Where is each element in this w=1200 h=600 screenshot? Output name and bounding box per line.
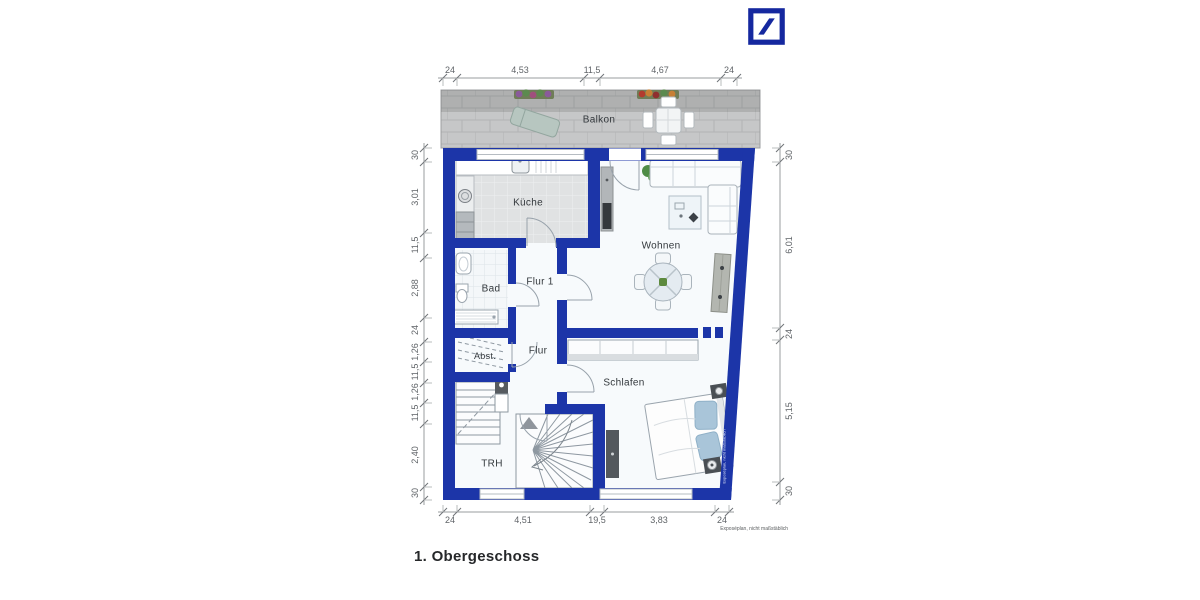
dim-right-2: 24 [784, 329, 794, 339]
room-label-kueche: Küche [513, 198, 543, 209]
floorplan-page: Balkon Küche Wohnen Bad Flur 1 Flur Abst… [0, 0, 1200, 600]
dim-right-4: 30 [784, 486, 794, 496]
dim-left-4: 24 [410, 325, 420, 335]
room-label-wohnen: Wohnen [642, 241, 681, 252]
dim-left-3: 2,88 [410, 279, 420, 297]
room-label-trh: TRH [481, 459, 502, 470]
dim-left-9: 2,40 [410, 446, 420, 464]
dim-left-6: 11,5 [410, 364, 420, 381]
room-label-abst: Abst. [474, 351, 496, 361]
page-title: 1. Obergeschoss [414, 548, 539, 565]
dim-top-0: 24 [445, 65, 455, 75]
room-label-flur: Flur [529, 346, 547, 357]
dim-left-7: 1,26 [410, 383, 420, 401]
room-label-schlafen: Schlafen [603, 378, 644, 389]
dim-right-3: 5,15 [784, 402, 794, 420]
dim-bottom-2: 19,5 [588, 515, 606, 525]
scale-footnote: Exposéplan, nicht maßstäblich [688, 526, 788, 532]
nightstand-top [710, 383, 728, 399]
deutsche-bank-logo-icon [748, 8, 785, 45]
flower-box-left [514, 89, 554, 99]
dim-right-0: 30 [784, 150, 794, 160]
dim-right-1: 6,01 [784, 236, 794, 254]
dim-bottom-3: 3,83 [650, 515, 668, 525]
dim-left-5: 1,26 [410, 343, 420, 361]
dim-left-2: 11,5 [410, 237, 420, 254]
dim-bottom-0: 24 [445, 515, 455, 525]
dim-top-3: 4,67 [651, 65, 669, 75]
wall-watermark: Exposéplan, nicht maßstäblich [722, 422, 727, 492]
dim-top-2: 11,5 [584, 65, 601, 75]
dim-top-1: 4,53 [511, 65, 529, 75]
dim-bottom-4: 24 [717, 515, 727, 525]
dim-bottom-1: 4,51 [514, 515, 532, 525]
nightstand-bottom [703, 457, 722, 474]
wardrobe [568, 340, 698, 360]
dim-left-0: 30 [410, 150, 420, 160]
sideboard [711, 254, 731, 313]
dim-left-8: 11,5 [410, 405, 420, 422]
deutsche-bank-logo [748, 8, 785, 45]
dim-top-4: 24 [724, 65, 734, 75]
dim-left-10: 30 [410, 488, 420, 498]
coffee-table [669, 196, 701, 229]
room-label-balkon: Balkon [583, 115, 615, 126]
floorplan-drawing [0, 0, 1200, 600]
room-label-flur1: Flur 1 [526, 277, 553, 288]
room-label-bad: Bad [482, 284, 501, 295]
dim-left-1: 3,01 [410, 188, 420, 206]
